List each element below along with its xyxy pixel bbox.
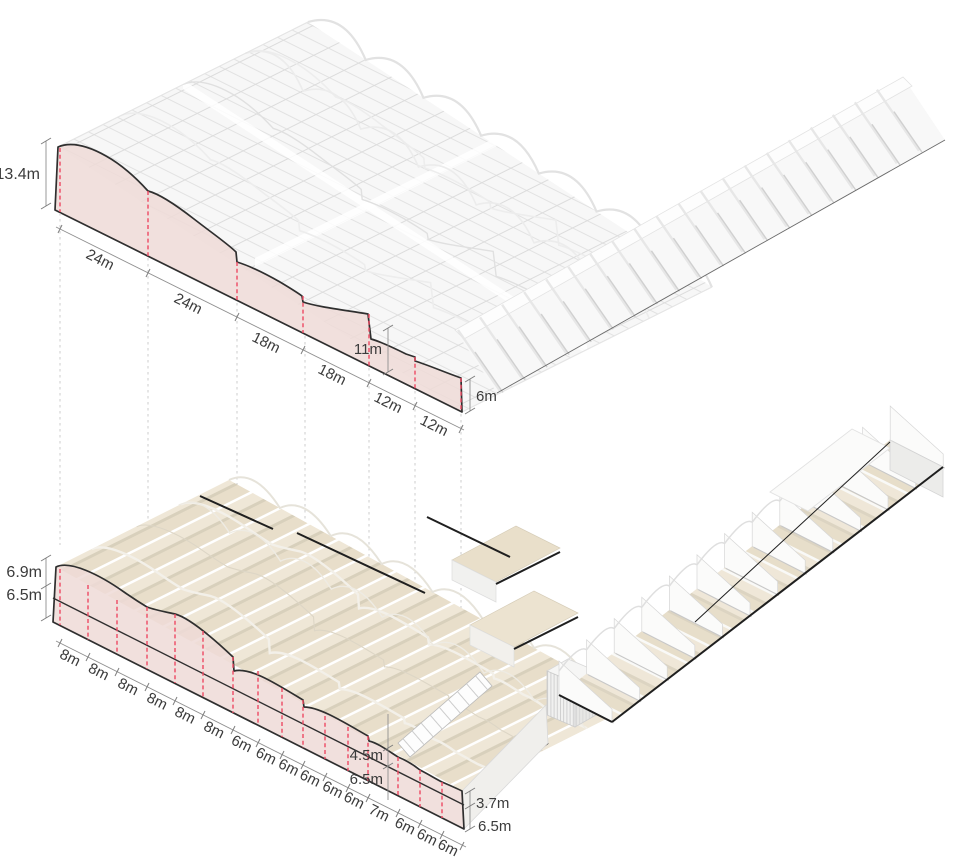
bar-back-base-line	[695, 442, 890, 622]
dim-label-bay: 6m	[253, 744, 279, 769]
dim-label-bay: 6m	[435, 836, 461, 861]
upper-height-left-dim: 13.4m	[0, 138, 51, 209]
dim-label-bay: 6m	[341, 788, 367, 813]
lower-structure	[0, 400, 960, 840]
dim-tick	[201, 711, 205, 719]
dim-label-right-lower: 6.5m	[478, 818, 511, 835]
dim-label-height-step: 11m	[354, 341, 382, 358]
lower-right-bar	[540, 406, 960, 740]
dim-label-mid-lower: 6.5m	[350, 771, 383, 788]
dim-tick	[231, 726, 235, 734]
dim-label-bay: 8m	[85, 660, 111, 685]
dim-label-bay: 8m	[144, 689, 170, 714]
lower-height-left-dim: 6.9m 6.5m	[6, 555, 51, 621]
upper-structure	[0, 0, 960, 500]
dim-tick	[235, 313, 239, 321]
bar-fin-walls	[559, 406, 945, 723]
dim-label-right-upper: 3.7m	[476, 795, 509, 812]
axonometric-diagram: 24m24m18m18m12m12m 13.4m 11m 6m 8m8m8m8m…	[0, 0, 960, 864]
dim-label-bay: 12m	[417, 412, 451, 440]
dim-label-bay: 18m	[249, 329, 283, 357]
dim-label-bay: 24m	[83, 246, 117, 274]
dim-label-bay: 24m	[171, 290, 205, 318]
dim-label-left-lower: 6.5m	[6, 587, 42, 604]
dim-label-bay: 18m	[315, 361, 349, 389]
dim-label-mid-upper: 4.5m	[350, 747, 383, 764]
dim-label-bay: 8m	[201, 718, 227, 743]
dim-label-bay: 7m	[366, 801, 392, 826]
diagram-canvas: 24m24m18m18m12m12m 13.4m 11m 6m 8m8m8m8m…	[0, 0, 960, 864]
dim-label-bay: 12m	[371, 389, 405, 417]
dim-label-bay: 8m	[172, 703, 198, 728]
dim-tick	[301, 346, 305, 354]
dim-label-bay: 8m	[57, 646, 83, 671]
dim-label-bay: 8m	[115, 675, 141, 700]
dim-label-height-left: 13.4m	[0, 166, 40, 183]
dim-label-bay: 6m	[414, 825, 440, 850]
dim-label-left-upper: 6.9m	[6, 564, 42, 581]
dim-label-bay: 6m	[228, 732, 254, 757]
dim-tick	[86, 653, 90, 661]
dim-label-bay: 6m	[319, 778, 345, 803]
dim-label-height-right: 6m	[476, 388, 497, 405]
dim-label-bay: 6m	[275, 755, 301, 780]
dim-tick	[58, 639, 62, 647]
bar-front-base-line	[612, 467, 943, 722]
dim-label-bay: 6m	[297, 766, 323, 791]
dim-label-bay: 6m	[392, 814, 418, 839]
